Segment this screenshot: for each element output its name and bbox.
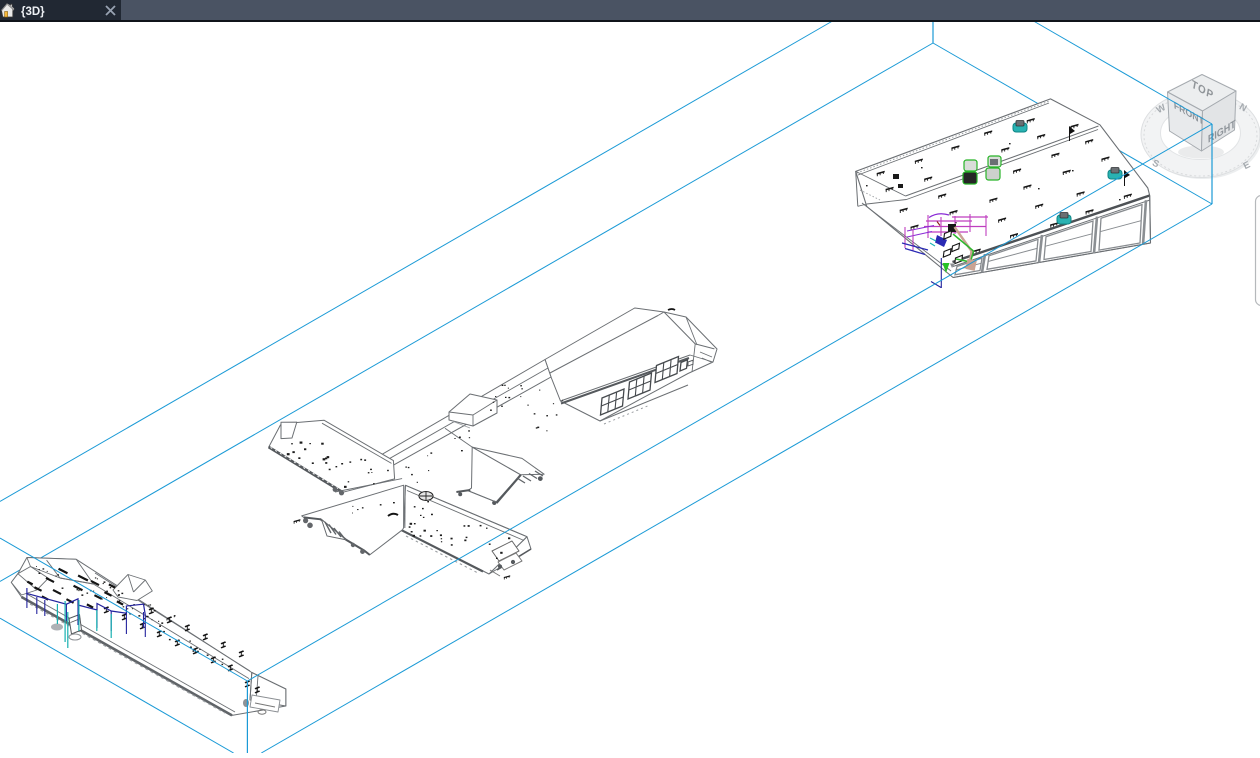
svg-text:{3D}: {3D} xyxy=(21,6,45,18)
